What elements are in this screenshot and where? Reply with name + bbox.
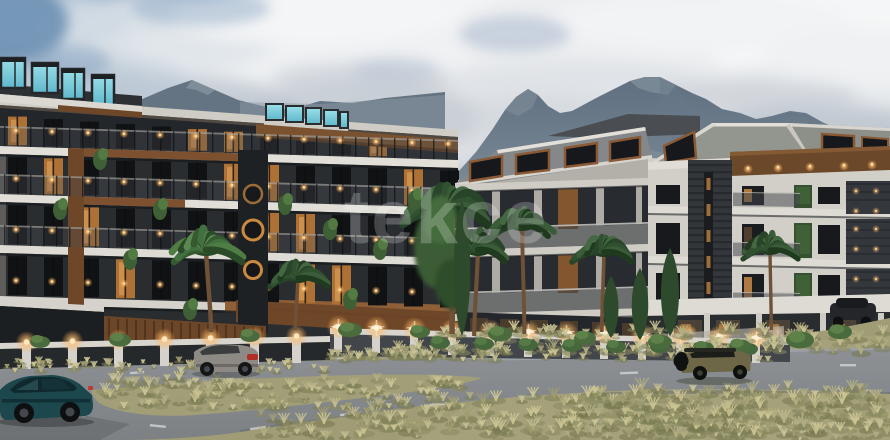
svg-text:tekce: tekce — [344, 175, 548, 260]
